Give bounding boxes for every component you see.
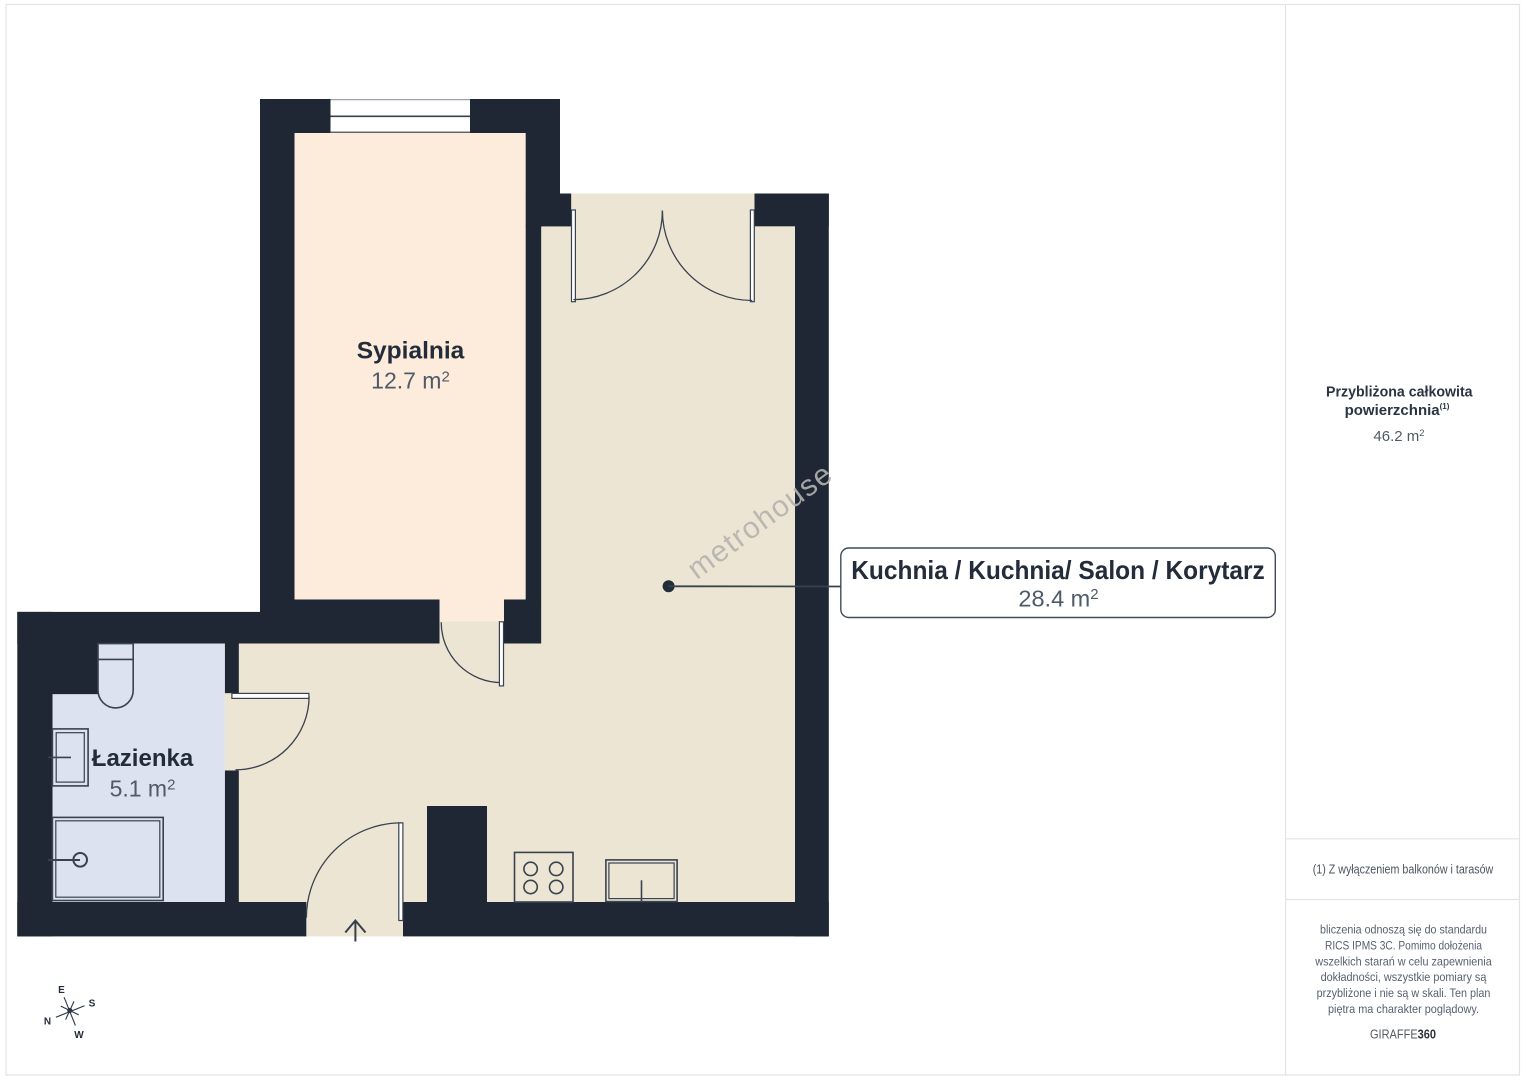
svg-text:(1) Z wyłączeniem balkonów i t: (1) Z wyłączeniem balkonów i tarasów <box>1313 863 1494 877</box>
svg-text:S: S <box>89 999 96 1010</box>
svg-text:W: W <box>74 1030 84 1041</box>
svg-text:wszelkich starań w celu zapewn: wszelkich starań w celu zapewnienia <box>1314 954 1492 968</box>
svg-text:Kuchnia / Kuchnia/ Salon / Kor: Kuchnia / Kuchnia/ Salon / Korytarz <box>851 555 1265 585</box>
svg-text:GIRAFFE360: GIRAFFE360 <box>1370 1028 1436 1042</box>
svg-text:5.1 m2: 5.1 m2 <box>110 776 176 802</box>
svg-text:12.7 m2: 12.7 m2 <box>371 368 450 394</box>
svg-text:Sypialnia: Sypialnia <box>357 338 465 365</box>
svg-text:E: E <box>58 985 65 996</box>
svg-text:N: N <box>44 1017 51 1028</box>
svg-text:powierzchnia(1): powierzchnia(1) <box>1345 402 1450 419</box>
svg-text:przybliżone i nie są w skali.: przybliżone i nie są w skali. Ten plan <box>1317 986 1491 1000</box>
svg-text:28.4 m2: 28.4 m2 <box>1018 586 1098 612</box>
svg-text:RICS IPMS 3C. Pomimo dołożenia: RICS IPMS 3C. Pomimo dołożenia <box>1325 939 1482 953</box>
svg-text:46.2 m2: 46.2 m2 <box>1373 428 1424 445</box>
svg-text:bliczenia odnoszą się do stand: bliczenia odnoszą się do standardu <box>1320 923 1487 937</box>
svg-text:piętra ma charakter poglądowy.: piętra ma charakter poglądowy. <box>1328 1002 1479 1016</box>
svg-text:dokładności, wszystkie pomiary: dokładności, wszystkie pomiary są <box>1321 970 1487 984</box>
svg-text:Łazienka: Łazienka <box>92 745 194 772</box>
svg-text:Przybliżona całkowita: Przybliżona całkowita <box>1326 383 1473 400</box>
